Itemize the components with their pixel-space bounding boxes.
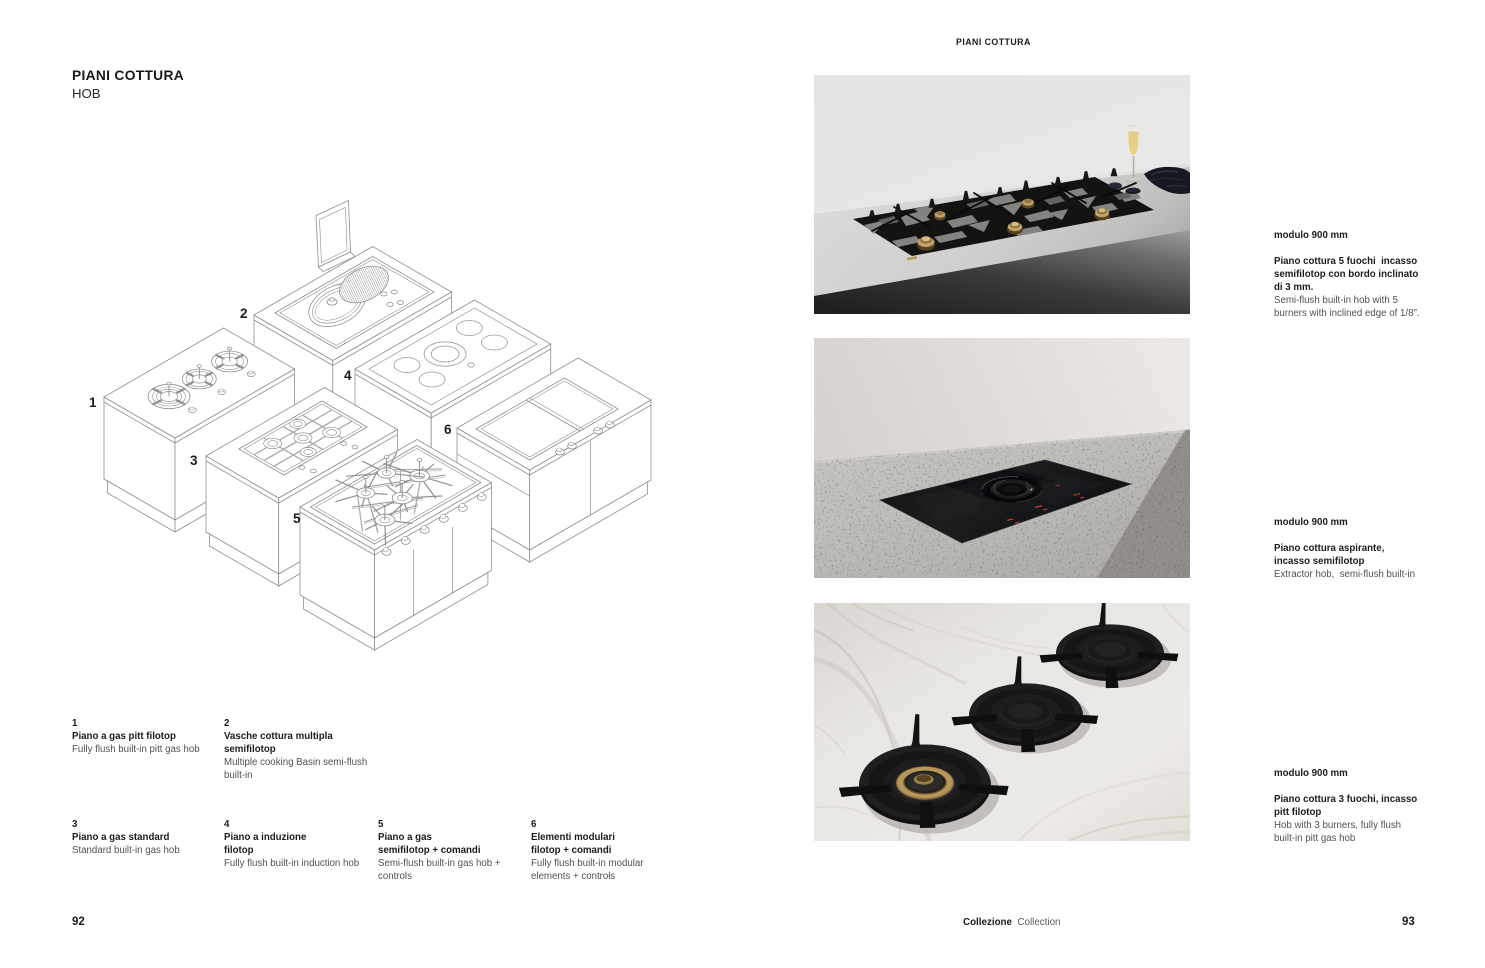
svg-text:3: 3 [190, 453, 198, 468]
svg-text:2: 2 [240, 306, 248, 321]
svg-text:6: 6 [444, 422, 452, 437]
svg-text:5: 5 [293, 511, 301, 526]
svg-text:4: 4 [344, 368, 352, 383]
svg-text:1: 1 [89, 395, 97, 410]
